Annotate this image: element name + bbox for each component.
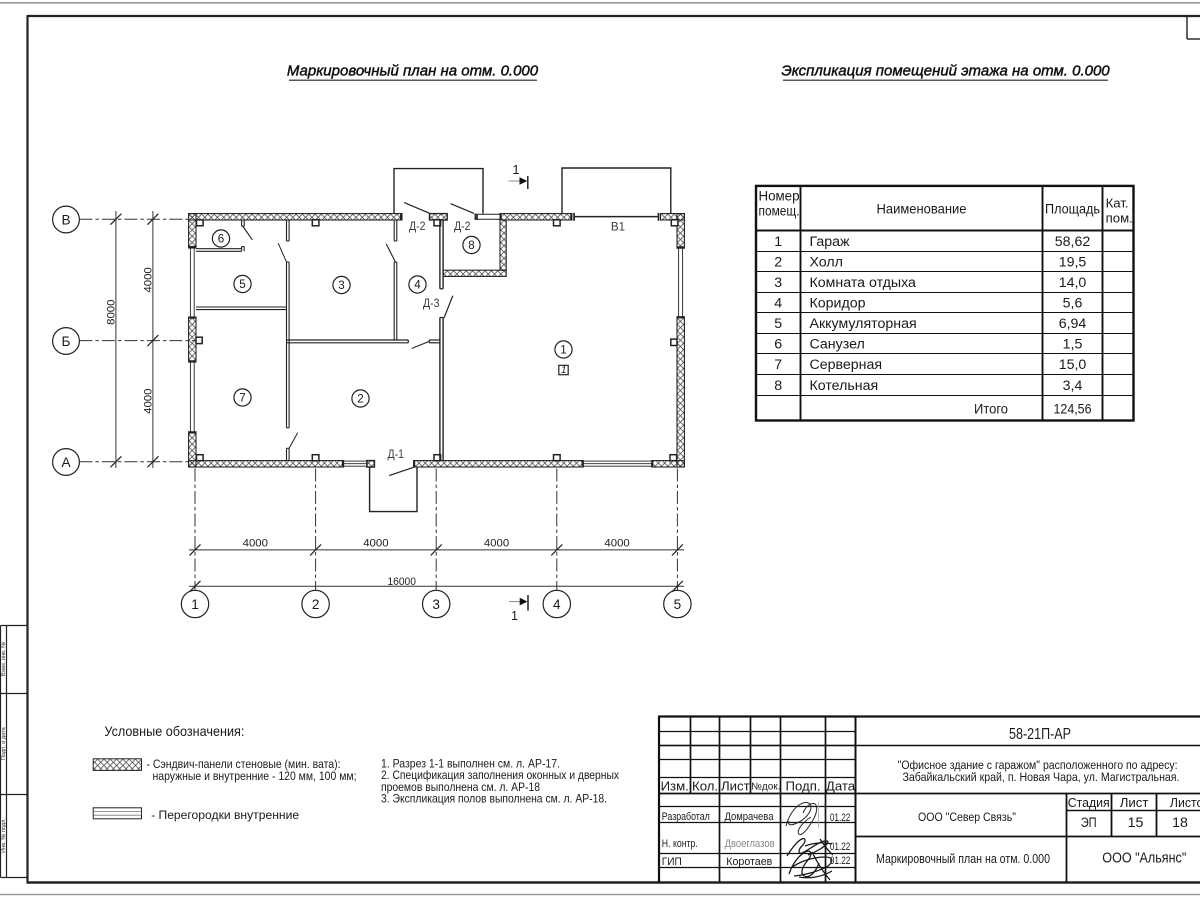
svg-text:Б: Б bbox=[62, 334, 71, 349]
svg-text:1: 1 bbox=[774, 234, 782, 250]
svg-text:Итого: Итого bbox=[974, 401, 1008, 417]
svg-text:58-21П-АР: 58-21П-АР bbox=[1009, 726, 1071, 743]
svg-text:наружные и внутренние - 120 мм: наружные и внутренние - 120 мм, 100 мм; bbox=[153, 769, 357, 783]
svg-text:Д-1: Д-1 bbox=[388, 448, 405, 461]
svg-text:3,4: 3,4 bbox=[1063, 378, 1083, 394]
svg-text:Номер: Номер bbox=[759, 189, 800, 204]
svg-text:ЭП: ЭП bbox=[1081, 815, 1097, 831]
svg-text:ГИП: ГИП bbox=[662, 856, 682, 868]
svg-text:6,94: 6,94 bbox=[1059, 316, 1087, 332]
svg-text:5: 5 bbox=[239, 278, 245, 291]
svg-text:Дата: Дата bbox=[826, 778, 856, 793]
svg-text:6: 6 bbox=[218, 233, 224, 246]
svg-text:01.22: 01.22 bbox=[830, 855, 851, 867]
svg-text:А: А bbox=[61, 455, 71, 470]
svg-text:15,0: 15,0 bbox=[1059, 357, 1087, 373]
svg-text:1: 1 bbox=[560, 344, 566, 357]
svg-text:№док.: №док. bbox=[751, 782, 780, 793]
svg-text:4000: 4000 bbox=[143, 389, 155, 414]
svg-text:1: 1 bbox=[561, 365, 566, 376]
svg-text:1: 1 bbox=[512, 163, 519, 177]
svg-text:124,56: 124,56 bbox=[1054, 401, 1092, 417]
svg-text:Комната отдыха: Комната отдыха bbox=[810, 275, 917, 291]
svg-text:6: 6 bbox=[774, 337, 782, 353]
svg-text:01.22: 01.22 bbox=[830, 841, 851, 853]
svg-text:8000: 8000 bbox=[106, 300, 118, 325]
svg-text:Д-2: Д-2 bbox=[454, 220, 471, 233]
svg-text:Гараж: Гараж bbox=[810, 234, 851, 250]
svg-text:помещ.: помещ. bbox=[759, 204, 800, 219]
svg-text:Д-3: Д-3 bbox=[423, 297, 440, 310]
svg-text:16000: 16000 bbox=[387, 576, 416, 588]
svg-text:ООО "Север Связь": ООО "Север Связь" bbox=[918, 810, 1016, 824]
svg-text:4: 4 bbox=[414, 279, 421, 292]
svg-text:19,5: 19,5 bbox=[1059, 255, 1087, 271]
svg-text:14,0: 14,0 bbox=[1059, 275, 1087, 291]
svg-text:4000: 4000 bbox=[363, 537, 388, 549]
svg-text:Коротаев: Коротаев bbox=[726, 856, 772, 868]
svg-text:Наименование: Наименование bbox=[877, 201, 967, 217]
svg-text:4000: 4000 bbox=[243, 537, 268, 549]
svg-text:Аккумуляторная: Аккумуляторная bbox=[810, 316, 917, 332]
svg-text:1: 1 bbox=[511, 609, 518, 623]
svg-text:4: 4 bbox=[553, 597, 561, 612]
svg-text:- Перегородки внутренние: - Перегородки внутренние bbox=[151, 808, 299, 822]
svg-text:4000: 4000 bbox=[604, 537, 629, 549]
svg-text:Изм.: Изм. bbox=[661, 778, 689, 793]
svg-text:7: 7 bbox=[774, 357, 782, 373]
svg-text:пом.: пом. bbox=[1106, 211, 1133, 226]
svg-text:3: 3 bbox=[432, 597, 440, 612]
svg-text:Домрачева: Домрачева bbox=[725, 811, 775, 823]
svg-text:4000: 4000 bbox=[143, 267, 155, 292]
svg-text:Подп. и дата: Подп. и дата bbox=[1, 726, 7, 760]
svg-text:5,6: 5,6 bbox=[1063, 296, 1083, 312]
svg-text:Д-2: Д-2 bbox=[409, 220, 426, 233]
svg-text:58,62: 58,62 bbox=[1055, 234, 1091, 250]
svg-text:Лист: Лист bbox=[721, 778, 750, 793]
svg-text:Н. контр.: Н. контр. bbox=[662, 838, 698, 850]
svg-text:4000: 4000 bbox=[484, 537, 509, 549]
svg-text:2: 2 bbox=[312, 597, 320, 612]
svg-text:8: 8 bbox=[468, 239, 474, 252]
svg-text:Забайкальский край, п. Новая Ч: Забайкальский край, п. Новая Чара, ул. М… bbox=[903, 770, 1180, 784]
svg-text:4: 4 bbox=[774, 296, 782, 312]
svg-text:3: 3 bbox=[338, 279, 344, 292]
svg-text:8: 8 bbox=[774, 378, 782, 394]
svg-text:Условные обозначения:: Условные обозначения: bbox=[104, 723, 244, 739]
svg-text:15: 15 bbox=[1128, 815, 1144, 831]
svg-text:1,5: 1,5 bbox=[1063, 337, 1083, 353]
svg-text:Подп.: Подп. bbox=[785, 778, 820, 793]
svg-text:Разработал: Разработал bbox=[662, 811, 710, 823]
svg-text:5: 5 bbox=[774, 316, 782, 332]
svg-text:Двоеглазов: Двоеглазов bbox=[725, 838, 775, 850]
svg-text:Взам. инв. №: Взам. инв. № bbox=[1, 642, 7, 677]
svg-text:5: 5 bbox=[674, 597, 682, 612]
svg-text:01.22: 01.22 bbox=[830, 812, 851, 824]
svg-text:ООО "Альянс": ООО "Альянс" bbox=[1102, 851, 1186, 867]
svg-text:2: 2 bbox=[774, 255, 782, 271]
svg-text:2: 2 bbox=[357, 393, 363, 406]
svg-text:Котельная: Котельная bbox=[810, 378, 879, 394]
svg-text:Маркировочный план на отм. 0.0: Маркировочный план на отм. 0.000 bbox=[876, 851, 1050, 866]
svg-text:Кол.: Кол. bbox=[692, 778, 718, 793]
svg-text:18: 18 bbox=[1172, 815, 1188, 831]
svg-text:7: 7 bbox=[239, 392, 245, 405]
svg-text:Экспликация помещений этажа на: Экспликация помещений этажа на отм. 0.00… bbox=[781, 63, 1110, 80]
svg-text:В1: В1 bbox=[611, 221, 625, 234]
svg-text:Маркировочный план на отм. 0.0: Маркировочный план на отм. 0.000 bbox=[287, 63, 539, 80]
svg-text:Кат.: Кат. bbox=[1106, 196, 1129, 211]
svg-text:В: В bbox=[61, 212, 70, 227]
svg-text:Площадь: Площадь bbox=[1045, 202, 1100, 217]
svg-text:3: 3 bbox=[774, 275, 782, 291]
svg-text:Холл: Холл bbox=[810, 255, 843, 271]
svg-text:Лист: Лист bbox=[1120, 795, 1149, 810]
svg-text:Инв. № подл.: Инв. № подл. bbox=[1, 818, 7, 853]
svg-text:Санузел: Санузел bbox=[810, 337, 865, 353]
svg-text:Стадия: Стадия bbox=[1068, 795, 1110, 810]
svg-text:1: 1 bbox=[191, 597, 199, 612]
svg-text:Серверная: Серверная bbox=[810, 357, 883, 373]
svg-text:Листов: Листов bbox=[1170, 795, 1200, 810]
svg-text:Коридор: Коридор bbox=[810, 296, 866, 312]
svg-text:3. Экспликация полов выполнена: 3. Экспликация полов выполнена см. л. АР… bbox=[381, 791, 607, 805]
